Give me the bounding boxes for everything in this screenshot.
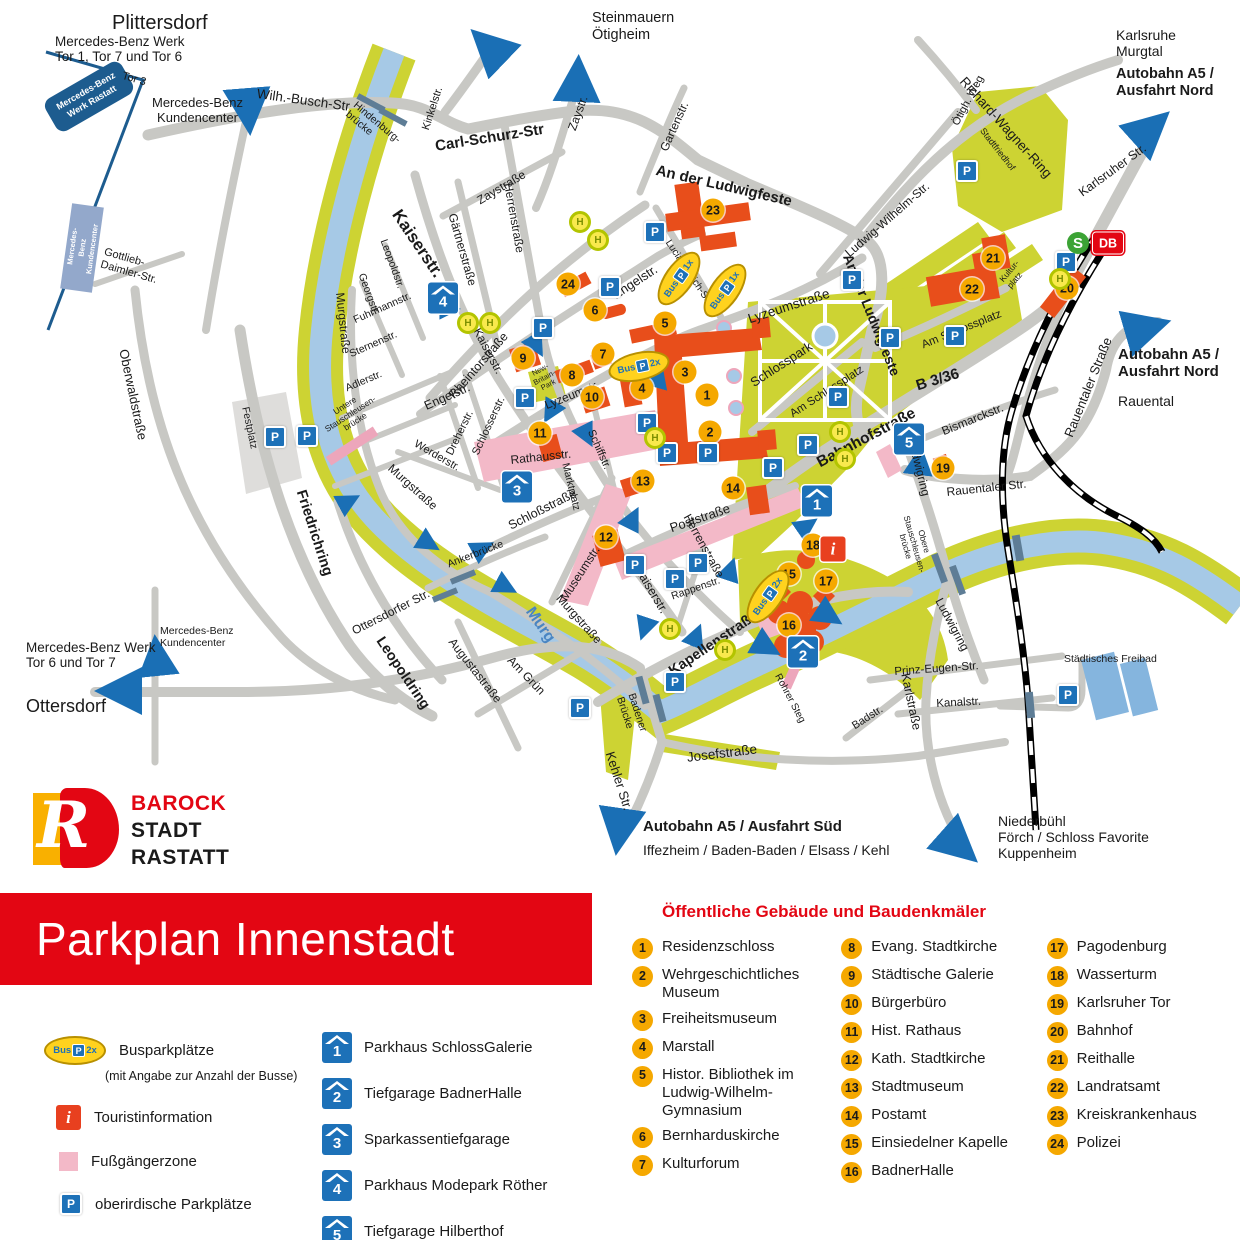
exit-arrow-steinmauern: [577, 70, 578, 92]
legend-tourist-label: Touristinformation: [94, 1109, 212, 1126]
parking-icon: P: [569, 697, 591, 719]
parkplan-poster: Mercedes-Benz Werk Rastatt Mercedes-Benz…: [0, 0, 1240, 1240]
poi-marker-2: 2: [699, 421, 722, 444]
poi-item: 16BadnerHalle: [841, 1162, 1032, 1183]
parking-icon: P: [644, 221, 666, 243]
barock-stadt-rastatt-logo: R BAROCK STADT RASTATT: [33, 788, 343, 873]
poi-marker-13: 13: [632, 470, 655, 493]
parking-icon: P: [624, 554, 646, 576]
parkhaus-icon-4: 4: [428, 283, 458, 314]
fountain: [729, 401, 743, 415]
parkhaus-icon-3: 3: [502, 472, 532, 503]
title-banner: Parkplan Innenstadt: [0, 893, 592, 985]
poi-item: 8Evang. Stadtkirche: [841, 938, 1032, 959]
poi-item: 18Wasserturm: [1047, 966, 1238, 987]
legend-pedestrian-label: Fußgängerzone: [91, 1153, 197, 1170]
logo-line-2: STADT: [131, 819, 202, 843]
destination-label: Plittersdorf: [112, 12, 208, 35]
destination-label: Mercedes-Benz Kundencenter: [160, 626, 234, 650]
parking-icon: P: [944, 325, 966, 347]
parkhaus-list: 1 Parkhaus SchlossGalerie 2 Tiefgarage B…: [322, 1032, 547, 1240]
destination-label: Autobahn A5 / Ausfahrt Nord: [1116, 66, 1214, 99]
destination-label: Niederbühl Förch / Schloss Favorite Kupp…: [998, 814, 1149, 862]
tourist-info-icon: i: [56, 1105, 81, 1130]
bus-stop-icon: H: [834, 448, 856, 470]
poi-marker-22: 22: [961, 278, 984, 301]
poi-marker-8: 8: [561, 364, 584, 387]
fountain: [727, 369, 741, 383]
poi-marker-10: 10: [581, 386, 604, 409]
poi-item: 12Kath. Stadtkirche: [841, 1050, 1032, 1071]
poi-item: 14Postamt: [841, 1106, 1032, 1127]
poi-item: 17Pagodenburg: [1047, 938, 1238, 959]
street-label: Kanalstr.: [936, 696, 981, 711]
logo-line-1: BAROCK: [131, 792, 226, 816]
destination-label: Autobahn A5 / Ausfahrt Süd: [643, 818, 842, 835]
tourist-info-icon: i: [821, 537, 846, 562]
poi-legend: Öffentliche Gebäude und Baudenkmäler 1Re…: [632, 902, 1238, 1190]
parking-icon: P: [60, 1193, 82, 1215]
destination-label: Rauental: [1118, 394, 1174, 410]
poi-item: 3Freiheitsmuseum: [632, 1010, 827, 1031]
parking-icon: P: [532, 317, 554, 339]
poi-item: 5Histor. Bibliothek im Ludwig-Wilhelm-Gy…: [632, 1066, 827, 1121]
poi-marker-6: 6: [584, 299, 607, 322]
poi-item: 22Landratsamt: [1047, 1078, 1238, 1099]
poi-item: 13Stadtmuseum: [841, 1078, 1032, 1099]
parking-icon: P: [599, 276, 621, 298]
bus-parking-icon: BusP2x: [44, 1036, 106, 1065]
destination-label: Ottersdorf: [26, 696, 106, 717]
bus-stop-icon: H: [644, 427, 666, 449]
legend-bus-sub: (mit Angabe zur Anzahl der Busse): [105, 1069, 319, 1083]
parking-icon: P: [762, 457, 784, 479]
pedestrian-zone-icon: [59, 1152, 78, 1171]
parkhaus-icon: 4: [322, 1170, 352, 1201]
db-icon: DB: [1092, 232, 1124, 255]
legend-bus-label: Busparkplätze: [119, 1042, 214, 1059]
destination-label: Mercedes-Benz Kundencenter: [152, 96, 243, 126]
poi-item: 19Karlsruher Tor: [1047, 994, 1238, 1015]
parkhaus-icon-1: 1: [802, 486, 832, 517]
bus-stop-icon: H: [479, 312, 501, 334]
destination-label: Mercedes-Benz Werk Tor 1, Tor 7 und Tor …: [55, 34, 185, 65]
parking-icon: P: [296, 425, 318, 447]
destination-label: Steinmauern Ötigheim: [592, 10, 674, 43]
poi-item: 10Bürgerbüro: [841, 994, 1032, 1015]
parking-icon: P: [264, 426, 286, 448]
poi-item: 4Marstall: [632, 1038, 827, 1059]
destination-label: Iffezheim / Baden-Baden / Elsass / Kehl: [643, 843, 889, 859]
poi-marker-23: 23: [702, 199, 725, 222]
destination-label: Karlsruhe Murgtal: [1116, 28, 1176, 60]
bus-stop-icon: H: [659, 618, 681, 640]
parkhaus-list-item: 2 Tiefgarage BadnerHalle: [322, 1078, 547, 1109]
parkhaus-icon-5: 5: [894, 424, 924, 455]
poi-marker-9: 9: [512, 347, 535, 370]
parking-icon: P: [956, 160, 978, 182]
poi-marker-19: 19: [932, 457, 955, 480]
sbahn-icon: S: [1067, 232, 1089, 254]
parkhaus-list-item: 1 Parkhaus SchlossGalerie: [322, 1032, 547, 1063]
parking-icon: P: [664, 568, 686, 590]
rastatt-r-emblem-icon: R: [33, 788, 119, 868]
poi-marker-12: 12: [595, 526, 618, 549]
parking-icon: P: [664, 671, 686, 693]
legend: BusP2x Busparkplätze (mit Angabe zur Anz…: [44, 1036, 319, 1239]
destination-label: Autobahn A5 / Ausfahrt Nord: [1118, 346, 1219, 380]
poi-item: 20Bahnhof: [1047, 1022, 1238, 1043]
logo-line-3: RASTATT: [131, 846, 229, 870]
legend-surface-label: oberirdische Parkplätze: [95, 1196, 252, 1213]
poi-marker-3: 3: [674, 361, 697, 384]
parkhaus-icon: 2: [322, 1078, 352, 1109]
parking-icon: P: [841, 269, 863, 291]
bus-stop-icon: H: [714, 639, 736, 661]
bus-stop-icon: H: [457, 312, 479, 334]
poi-item: 6Bernharduskirche: [632, 1127, 827, 1148]
poi-heading: Öffentliche Gebäude und Baudenkmäler: [662, 902, 1238, 922]
poi-item: 23Kreiskrankenhaus: [1047, 1106, 1238, 1127]
poi-item: 2Wehrgeschichtliches Museum: [632, 966, 827, 1003]
poi-item: 11Hist. Rathaus: [841, 1022, 1032, 1043]
parking-icon: P: [697, 442, 719, 464]
exit-arrow-kundencenter-sued: [156, 648, 158, 668]
bus-stop-icon: H: [587, 229, 609, 251]
parkhaus-icon: 5: [322, 1216, 352, 1240]
poi-marker-17: 17: [815, 570, 838, 593]
parkhaus-icon-2: 2: [788, 637, 818, 668]
poi-marker-14: 14: [722, 477, 745, 500]
parkhaus-list-item: 4 Parkhaus Modepark Röther: [322, 1170, 547, 1201]
area-label: Städtisches Freibad: [1064, 654, 1157, 666]
poi-marker-16: 16: [778, 614, 801, 637]
poi-item: 15Einsiedelner Kapelle: [841, 1134, 1032, 1155]
exit-arrow-kundencenter-nord: [247, 95, 249, 120]
poi-marker-5: 5: [654, 312, 677, 335]
poi-item: 1Residenzschloss: [632, 938, 827, 959]
poi-item: 7Kulturforum: [632, 1155, 827, 1176]
parking-icon: P: [797, 434, 819, 456]
page-title: Parkplan Innenstadt: [36, 912, 455, 966]
poi-item: 9Städtische Galerie: [841, 966, 1032, 987]
poi-marker-24: 24: [557, 273, 580, 296]
poi-marker-21: 21: [982, 247, 1005, 270]
poi-marker-1: 1: [696, 384, 719, 407]
poi-item: 24Polizei: [1047, 1134, 1238, 1155]
bus-stop-icon: H: [829, 421, 851, 443]
parking-icon: P: [879, 327, 901, 349]
bus-stop-icon: H: [1049, 268, 1071, 290]
parking-icon: P: [1057, 684, 1079, 706]
parkhaus-icon: 1: [322, 1032, 352, 1063]
bus-stop-icon: H: [569, 211, 591, 233]
parking-icon: P: [687, 552, 709, 574]
poi-item: 21Reithalle: [1047, 1050, 1238, 1071]
parking-icon: P: [514, 387, 536, 409]
poi-marker-11: 11: [529, 422, 552, 445]
parking-icon: P: [827, 386, 849, 408]
poi-marker-7: 7: [592, 343, 615, 366]
destination-label: Mercedes-Benz Werk Tor 6 und Tor 7: [26, 640, 156, 671]
parkhaus-list-item: 5 Tiefgarage Hilberthof: [322, 1216, 547, 1240]
parkhaus-icon: 3: [322, 1124, 352, 1155]
exit-arrow-a5-sued: [618, 812, 622, 840]
park-pond: [813, 324, 837, 348]
parkhaus-list-item: 3 Sparkassentiefgarage: [322, 1124, 547, 1155]
